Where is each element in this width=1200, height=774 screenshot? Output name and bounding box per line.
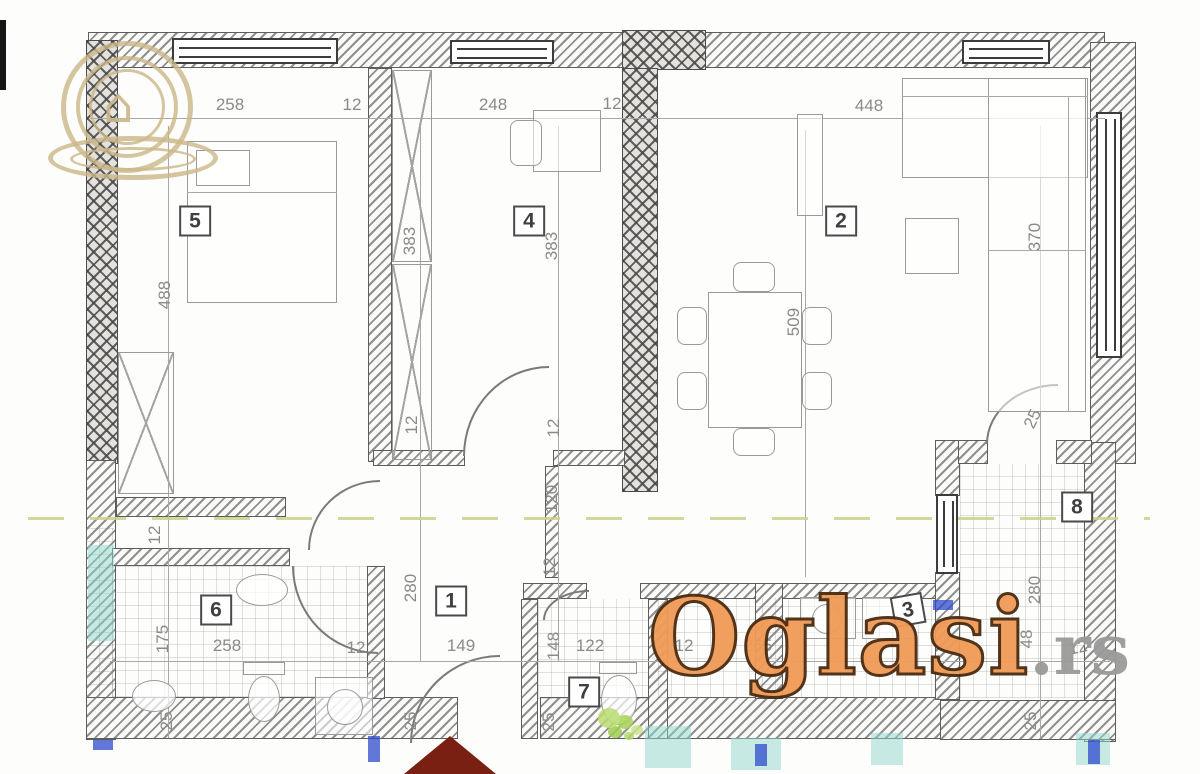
wall-top-shaft xyxy=(622,30,706,70)
dim-room5-width: 258 xyxy=(216,95,244,115)
room-label-6: 6 xyxy=(200,595,232,626)
dining-chair-right-1 xyxy=(802,307,832,345)
dim-12-d: 12 xyxy=(145,526,165,545)
blue-mark-b xyxy=(368,736,380,762)
bath6-pedestal-sink xyxy=(132,680,176,712)
dim-12-b: 12 xyxy=(544,419,564,438)
dim-sofa-height: 370 xyxy=(1025,223,1045,251)
bath6-sink xyxy=(236,574,288,606)
door-arc-room5 xyxy=(308,480,380,550)
plant xyxy=(598,708,620,728)
wc7-toilet-tank xyxy=(599,662,637,674)
sofa-back-line-right xyxy=(1068,96,1069,412)
sofa-back-line xyxy=(902,96,1088,97)
dim-25-b: 25 xyxy=(401,712,421,731)
house-icon: ⌂ xyxy=(103,78,133,134)
oglasi-brand-text: Oglasi xyxy=(648,574,1029,699)
dining-chair-bottom xyxy=(733,428,775,456)
dim-line-mid-b xyxy=(558,126,559,662)
wall-hall-b xyxy=(553,450,625,466)
room-label-4: 4 xyxy=(513,206,545,237)
room-label-8: 8 xyxy=(1061,492,1093,523)
dim-bottom-12-a: 12 xyxy=(347,638,366,658)
dim-room2-width: 448 xyxy=(855,96,883,116)
dim-25-a: 25 xyxy=(157,712,177,731)
room-label-7: 7 xyxy=(568,677,600,708)
dining-chair-left-1 xyxy=(677,307,707,345)
wall-room8-left-upper xyxy=(935,440,960,496)
dim-bath-175: 175 xyxy=(153,625,173,653)
dim-room4-width: 248 xyxy=(479,95,507,115)
wall-room8-top-a xyxy=(958,440,988,464)
dim-bottom-122: 122 xyxy=(576,636,604,656)
wardrobe-room5 xyxy=(118,352,174,494)
door-arc-room4 xyxy=(463,366,549,456)
wall-below-room5 xyxy=(116,497,286,517)
logo-roof-triangle xyxy=(404,736,496,774)
wall-between-4-2 xyxy=(622,68,658,492)
dim-wall-12-a: 12 xyxy=(343,95,362,115)
wall-wc7-left xyxy=(521,599,538,739)
dim-bottom-149: 149 xyxy=(447,636,475,656)
blue-mark-d xyxy=(1088,740,1100,764)
dim-12-c: 12 xyxy=(540,558,560,577)
window-room2-right xyxy=(1096,112,1122,358)
desk xyxy=(533,110,601,172)
window-room8-interior xyxy=(936,494,958,574)
wall-room8-top-b xyxy=(1056,440,1092,464)
shelf-room2 xyxy=(797,114,823,216)
bed-line xyxy=(187,192,337,193)
room-label-1: 1 xyxy=(435,586,467,617)
dim-room5-height: 488 xyxy=(155,281,175,309)
oglasi-suffix-text: .rs xyxy=(1029,608,1130,691)
dim-hall-280: 280 xyxy=(401,574,421,602)
window-room5 xyxy=(172,38,338,64)
dim-room4-height-right: 383 xyxy=(542,232,562,260)
blue-mark-a xyxy=(93,740,113,750)
teal-watermark-a xyxy=(645,726,691,768)
dining-chair-right-2 xyxy=(802,372,832,410)
dim-wall-12-b: 12 xyxy=(603,94,622,114)
wall-between-5-4 xyxy=(368,68,392,462)
dining-chair-left-2 xyxy=(677,372,707,410)
window-room2-top xyxy=(962,40,1050,64)
dim-bottom-258: 258 xyxy=(213,636,241,656)
wall-bath6-top xyxy=(112,548,290,566)
window-room4 xyxy=(450,40,554,64)
dim-hall-120: 120 xyxy=(542,485,562,513)
dim-dining-height: 509 xyxy=(784,308,804,336)
blue-mark-c xyxy=(755,744,767,766)
logo-ellipse-inner xyxy=(70,147,196,171)
scan-edge-artifact xyxy=(0,20,6,90)
bath6-toilet-bowl xyxy=(248,676,280,722)
room-label-2: 2 xyxy=(825,206,857,237)
door-arc-entrance xyxy=(410,655,500,743)
section-dashed-line xyxy=(28,517,1150,520)
dim-wc-148: 148 xyxy=(544,632,564,660)
desk-chair xyxy=(510,120,542,166)
dining-chair-top xyxy=(733,262,775,292)
oglasi-watermark: Oglasi.rs xyxy=(648,584,1130,690)
dim-12-a: 12 xyxy=(402,416,422,435)
washing-machine-drum xyxy=(327,689,363,725)
teal-watermark-c xyxy=(871,733,903,765)
coffee-table xyxy=(905,218,959,274)
dim-room4-height-left: 383 xyxy=(400,227,420,255)
dim-25-d: 25 xyxy=(1021,712,1041,731)
teal-watermark-left xyxy=(88,545,114,641)
bath6-toilet-tank xyxy=(243,662,285,675)
room-label-5: 5 xyxy=(179,206,211,237)
floor-plan: 258 12 248 12 448 488 383 383 370 509 12… xyxy=(0,0,1200,774)
dim-25-c: 25 xyxy=(539,713,559,732)
